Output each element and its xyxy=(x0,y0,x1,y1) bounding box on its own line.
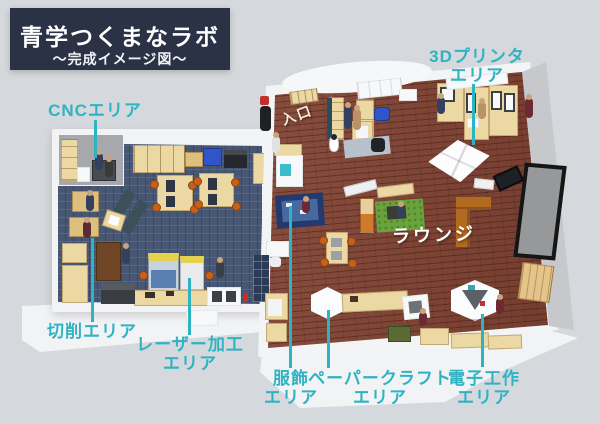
stool xyxy=(348,259,357,268)
table-equipment xyxy=(166,180,175,192)
stool xyxy=(193,177,202,186)
stool xyxy=(231,178,240,187)
table-equipment xyxy=(208,178,217,190)
person xyxy=(525,98,533,118)
green-table xyxy=(388,326,411,342)
label-line: エリア xyxy=(136,354,244,373)
lounge-label: ラウンジ xyxy=(392,220,477,249)
wall-bench xyxy=(62,265,88,303)
person xyxy=(344,106,352,129)
tool-item xyxy=(480,301,485,306)
label-line: エリア xyxy=(448,388,520,407)
stool xyxy=(152,203,161,212)
laser-machine xyxy=(180,256,204,290)
person xyxy=(272,136,280,153)
label-papercraft-area: ペーパークラフト エリア xyxy=(308,369,452,407)
label-line: 電子工作 xyxy=(448,369,520,388)
person xyxy=(83,221,91,238)
leader-line-clothing xyxy=(289,206,292,368)
large-brown-table xyxy=(96,242,121,281)
leader-line-laser xyxy=(188,278,191,335)
coat-stand xyxy=(260,106,271,131)
dark-machine xyxy=(101,283,135,304)
blue-machine xyxy=(203,148,222,166)
label-line: 3Dプリンタ xyxy=(429,47,525,66)
printer-box xyxy=(491,91,502,110)
leader-line-electronics xyxy=(481,314,484,367)
stool xyxy=(320,258,329,267)
stool xyxy=(194,200,203,209)
cutting-machine-panel xyxy=(151,270,176,288)
wall-bench xyxy=(62,243,87,263)
cabinet xyxy=(488,334,522,349)
coat-rack xyxy=(260,96,269,105)
stool xyxy=(347,237,356,246)
sewing-table xyxy=(266,241,289,257)
cabinet xyxy=(266,323,287,342)
cabinet-slot xyxy=(226,291,236,302)
person xyxy=(437,97,445,114)
person xyxy=(216,261,224,278)
label-cutting-area: 切削エリア xyxy=(47,322,137,341)
person xyxy=(397,205,405,218)
cabinet-slot xyxy=(212,291,222,302)
stool xyxy=(205,271,214,280)
table-equipment xyxy=(331,238,342,247)
cnc-small-machine xyxy=(77,167,90,182)
person xyxy=(122,247,130,264)
cnc-cabinet xyxy=(61,139,78,181)
work-table xyxy=(157,175,193,211)
black-machine xyxy=(224,150,247,168)
title-box: 青学つくまなラボ 〜完成イメージ図〜 xyxy=(10,8,230,70)
bench-items xyxy=(145,292,155,298)
cabinet xyxy=(420,328,449,345)
table-equipment xyxy=(166,196,175,207)
leader-line-cnc xyxy=(94,120,97,158)
penguin-head xyxy=(331,134,337,140)
person xyxy=(86,194,94,211)
table-equipment xyxy=(208,194,217,205)
bench-items xyxy=(350,296,358,302)
label-line: ペーパークラフト xyxy=(308,369,452,388)
person xyxy=(419,312,427,326)
label-line: エリア xyxy=(429,66,525,85)
office-chair xyxy=(371,138,385,152)
person xyxy=(353,109,361,130)
printer-box xyxy=(504,93,515,112)
tool-item xyxy=(468,285,475,290)
stool xyxy=(150,180,159,189)
leader-line-cutting xyxy=(91,238,94,322)
blue-chair xyxy=(374,107,390,121)
leader-line-3dprinter xyxy=(472,84,475,145)
floor-plan-illustration: 入口 ラ xyxy=(0,0,600,424)
bench-items xyxy=(166,291,174,296)
counter xyxy=(185,152,203,167)
stool xyxy=(232,202,241,211)
person xyxy=(496,298,504,314)
fire-extinguisher xyxy=(243,293,248,302)
wood-shelf xyxy=(518,262,555,303)
stool xyxy=(319,236,328,245)
person xyxy=(478,102,486,119)
stool xyxy=(139,271,148,280)
label-cnc-area: CNCエリア xyxy=(48,101,142,120)
person xyxy=(105,160,113,177)
leader-line-papercraft xyxy=(327,310,330,368)
white-bench xyxy=(474,178,495,190)
white-cabinet xyxy=(399,89,417,101)
label-electronics-area: 電子工作 エリア xyxy=(448,369,520,407)
person xyxy=(302,200,310,213)
table-equipment xyxy=(331,251,342,260)
label-laser-area: レーザー加工 エリア xyxy=(136,335,244,373)
locker-cabinets xyxy=(133,145,185,173)
white-chair xyxy=(270,257,281,267)
cabinet-front xyxy=(268,299,282,316)
kiosk-screen xyxy=(280,164,291,176)
label-line: レーザー加工 xyxy=(136,335,244,354)
tall-cabinet xyxy=(360,198,374,233)
label-3dprinter-area: 3Dプリンタ エリア xyxy=(429,47,525,85)
label-line: エリア xyxy=(308,388,452,407)
lab-subtitle: 〜完成イメージ図〜 xyxy=(10,49,230,69)
lab-title: 青学つくまなラボ xyxy=(10,18,230,52)
